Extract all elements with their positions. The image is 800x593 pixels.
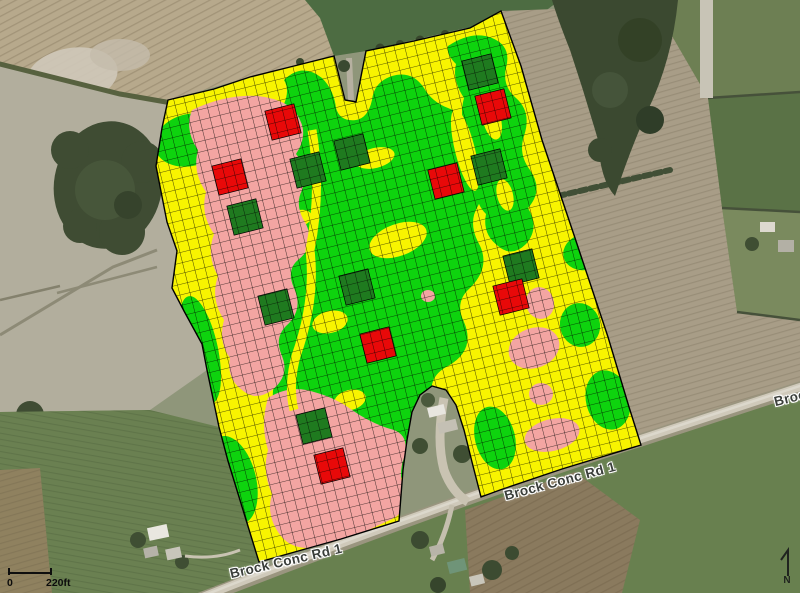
- aerial-map[interactable]: [0, 0, 800, 593]
- scale-bar-line: [8, 572, 52, 574]
- scale-bar: 0 220ft: [6, 566, 96, 592]
- north-indicator: N: [776, 546, 798, 592]
- map-canvas[interactable]: Brock Conc Rd 1 Brock Conc Rd 1 Brock Co…: [0, 0, 800, 593]
- side-road: [700, 0, 713, 98]
- scale-end-label: 220ft: [46, 577, 71, 589]
- north-label: N: [776, 575, 798, 586]
- gravel-patch: [90, 39, 150, 71]
- north-arrow-icon: [776, 546, 798, 578]
- field-right-2: [708, 92, 800, 212]
- tree-clump: [338, 60, 350, 72]
- scale-start-label: 0: [7, 577, 13, 589]
